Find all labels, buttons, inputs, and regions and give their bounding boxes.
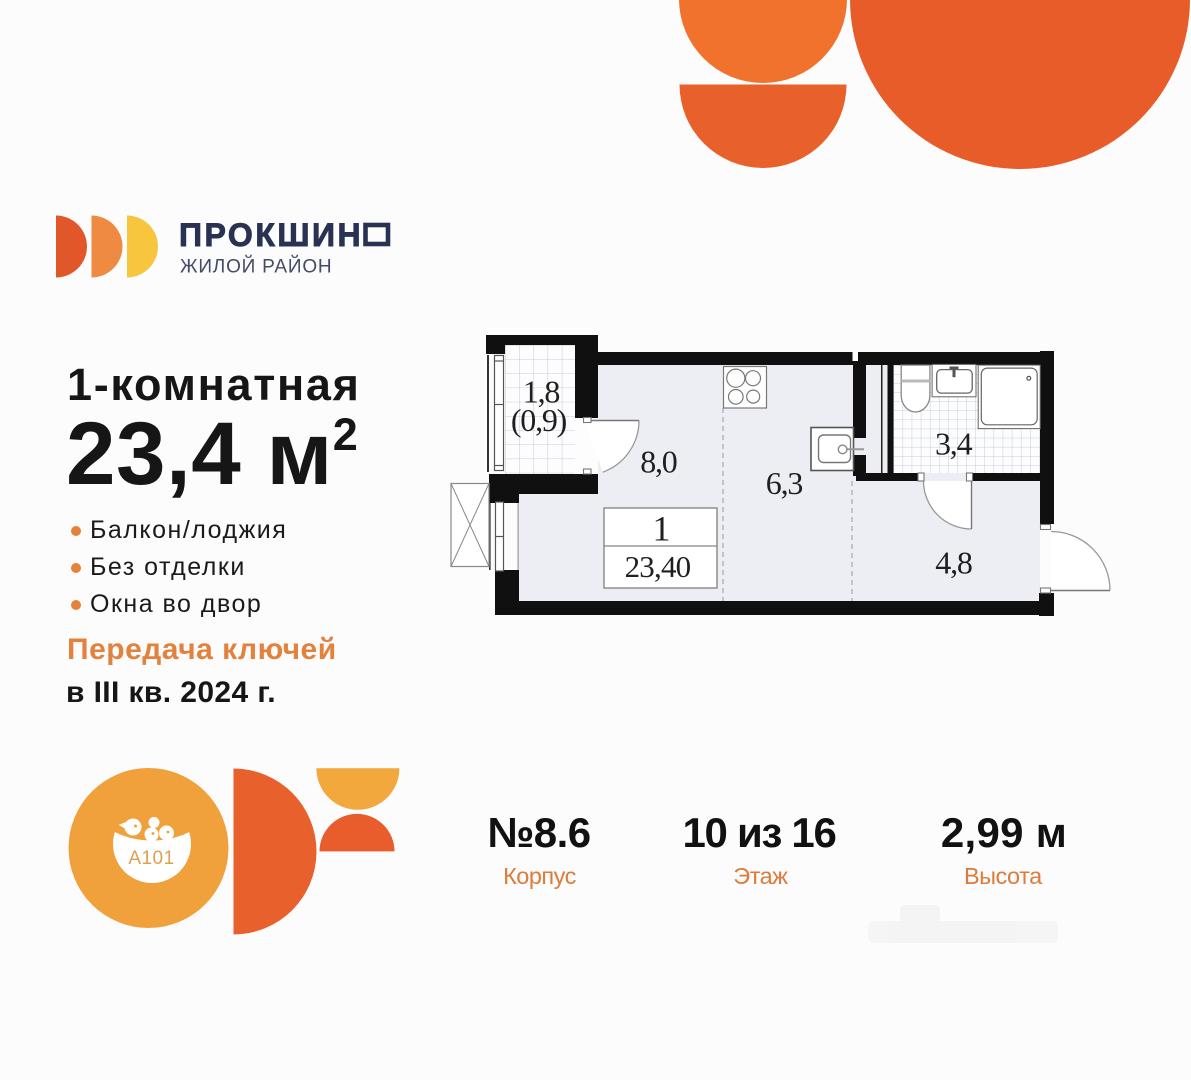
svg-text:A101: A101 bbox=[128, 848, 174, 869]
svg-text:3,4: 3,4 bbox=[935, 426, 973, 462]
svg-text:ЖИЛОЙ РАЙОН: ЖИЛОЙ РАЙОН bbox=[180, 256, 332, 278]
svg-text:6,3: 6,3 bbox=[766, 465, 803, 501]
svg-text:8,0: 8,0 bbox=[640, 443, 677, 479]
svg-text:23,40: 23,40 bbox=[625, 549, 691, 584]
svg-text:ПРОКШИН: ПРОКШИН bbox=[179, 217, 363, 253]
svg-text:(0,9): (0,9) bbox=[511, 402, 567, 438]
svg-text:1: 1 bbox=[653, 508, 671, 548]
svg-text:4,8: 4,8 bbox=[935, 544, 972, 580]
